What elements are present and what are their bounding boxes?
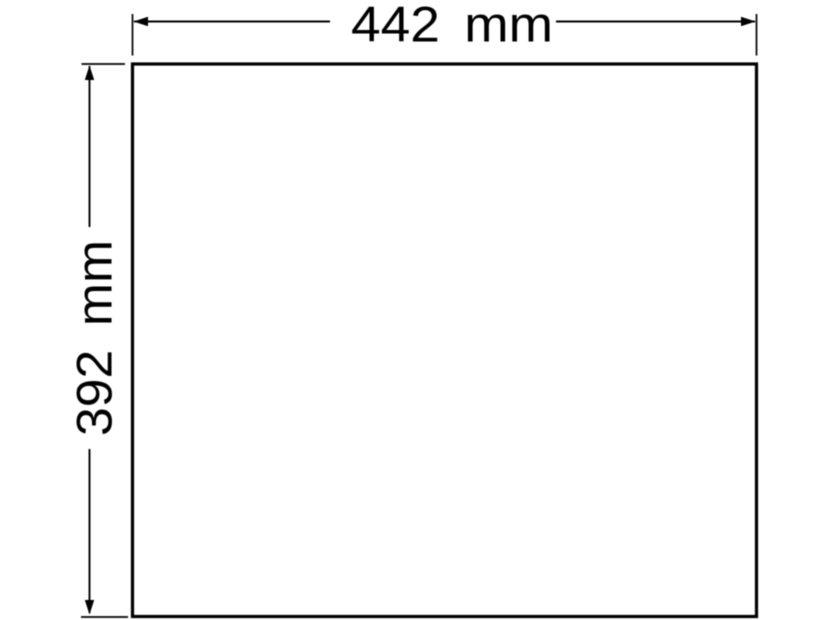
svg-text:442 mm: 442 mm <box>351 0 553 53</box>
svg-text:392 mm: 392 mm <box>67 240 123 436</box>
